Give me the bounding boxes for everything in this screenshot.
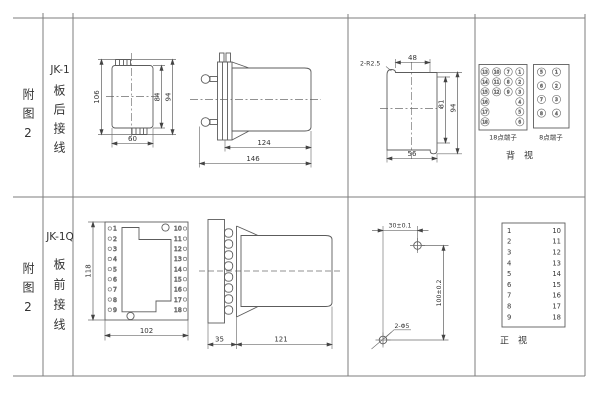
terminal-number: 4	[555, 111, 558, 117]
dim-30: 30±0.1	[389, 223, 412, 230]
terminal-grid-18: 131415161718101112789123456	[481, 68, 524, 126]
terminal-number: 16	[482, 99, 488, 105]
rear-terminal-layout: 131415161718101112789123456 56781234 18点…	[479, 65, 569, 162]
terminal-number: 10	[174, 226, 182, 233]
model-label-jk1: JK-1	[44, 64, 76, 76]
dim-84: 84	[154, 92, 162, 101]
terminal-number: 16	[552, 292, 561, 300]
terminal-column-right: 101112131415161718	[174, 226, 187, 314]
wiring-label-row2: 板前接线	[53, 258, 65, 338]
mounting-hole	[162, 224, 169, 231]
terminal-number: 6	[540, 83, 543, 89]
mounting-flange	[218, 62, 233, 140]
terminal-number: 8	[507, 79, 510, 85]
top-terminal-block	[116, 60, 131, 66]
wiring-label-row1: 板后接线	[53, 84, 65, 160]
jk1-panel-cutout-drawing: 2-R2.5 48 81 94 56	[360, 54, 462, 163]
terminal-number: 15	[174, 276, 182, 283]
terminal-number: 12	[494, 89, 500, 95]
terminal-number: 8	[540, 111, 543, 117]
terminal-number: 4	[113, 256, 117, 263]
terminal-column-left: 123456789	[108, 226, 117, 314]
terminal-circle	[108, 237, 111, 240]
terminal-number: 2	[113, 236, 117, 243]
terminal-circle	[183, 278, 186, 281]
cutout-outline	[387, 70, 437, 154]
terminal-number: 9	[507, 89, 510, 95]
terminal-number: 13	[552, 259, 561, 267]
jk1-front-view-drawing: 106 84 94 60	[93, 53, 176, 148]
jk1q-side-view-drawing: 35 121	[199, 220, 341, 350]
terminal-number: 4	[518, 99, 521, 105]
terminal-number: 2	[507, 238, 511, 246]
terminal-number: 9	[113, 307, 117, 314]
jk1q-front-view-drawing: 123456789 101112131415161718 118 102	[85, 222, 189, 341]
terminal-number: 18	[174, 307, 182, 314]
dim-121: 121	[274, 336, 287, 344]
terminal-grid-8: 56781234	[537, 68, 560, 117]
terminal-circle	[108, 298, 111, 301]
terminal-number: 1	[113, 226, 117, 233]
terminal-number: 12	[552, 249, 561, 257]
terminal-circle	[183, 298, 186, 301]
terminal-screw	[225, 251, 233, 259]
terminal-numbers-right: 101112131415161718	[552, 227, 561, 321]
dim-102: 102	[140, 327, 153, 335]
dim-60: 60	[128, 135, 137, 143]
bottom-terminal-block	[132, 128, 147, 135]
terminal-circle	[183, 237, 186, 240]
terminal-number: 15	[482, 89, 488, 95]
dim-corner-radius: 2-R2.5	[360, 61, 380, 68]
terminal-number: 14	[174, 266, 182, 273]
terminal-circle	[183, 247, 186, 250]
terminal-circle	[183, 288, 186, 291]
terminal-number: 7	[507, 292, 511, 300]
terminal-number: 14	[552, 270, 561, 278]
terminal-number: 1	[518, 69, 521, 75]
terminal-number: 10	[552, 227, 561, 235]
label-rear-view: 背视	[506, 150, 542, 162]
terminal-circle	[108, 308, 111, 311]
terminal-number: 2	[518, 79, 521, 85]
technical-drawing-svg: 106 84 94 60 124 146	[0, 0, 600, 400]
label-front-view: 正视	[500, 335, 536, 347]
drawing-sheet: 附图2 JK-1 板后接线 附图2 JK-1Q 板前接线 106 84 94 6…	[0, 0, 600, 400]
terminal-number: 13	[174, 256, 182, 263]
terminal-number: 3	[555, 97, 558, 103]
terminal-number: 8	[113, 297, 117, 304]
dim-118: 118	[85, 264, 93, 277]
dim-94: 94	[165, 92, 173, 101]
figure-label-row2: 附图2	[22, 262, 34, 321]
figure-label-row1: 附图2	[22, 88, 34, 147]
terminal-circle	[183, 227, 186, 230]
terminal-number: 6	[113, 276, 117, 283]
terminal-number: 18	[552, 313, 561, 321]
terminal-screw	[225, 273, 233, 281]
terminal-number: 7	[507, 69, 510, 75]
case-cutout-outline	[122, 228, 171, 312]
terminal-number: 17	[174, 297, 182, 304]
terminal-number: 17	[482, 109, 488, 115]
terminal-number: 18	[482, 119, 488, 125]
terminal-number: 5	[518, 109, 521, 115]
terminal-circle	[108, 257, 111, 260]
terminal-screw	[225, 262, 233, 270]
terminal-number: 15	[552, 281, 561, 289]
label-18-point: 18点端子	[489, 133, 517, 142]
terminal-number: 10	[494, 69, 500, 75]
front-terminal-table: 123456789 101112131415161718 正视	[500, 223, 565, 347]
dim-48: 48	[408, 54, 417, 62]
terminal-circle	[108, 247, 111, 250]
terminal-number: 3	[113, 246, 117, 253]
terminal-number: 16	[174, 287, 182, 294]
dim-100: 100±0.2	[436, 280, 443, 307]
terminal-number: 6	[507, 281, 511, 289]
terminal-number: 3	[518, 89, 521, 95]
terminal-number: 7	[540, 97, 543, 103]
terminal-screw	[201, 118, 210, 127]
terminal-numbers-left: 123456789	[507, 227, 511, 321]
terminal-number: 11	[174, 236, 182, 243]
terminal-number: 11	[552, 238, 561, 246]
jk1-side-view-drawing: 124 146	[190, 53, 321, 168]
terminal-number: 1	[507, 227, 511, 235]
dim-56: 56	[408, 150, 417, 158]
terminal-screw	[225, 229, 233, 237]
terminal-screw	[225, 306, 233, 314]
terminal-number: 17	[552, 303, 561, 311]
model-label-jk1q: JK-1Q	[41, 231, 79, 243]
terminal-circle	[183, 257, 186, 260]
dim-35: 35	[215, 336, 224, 344]
dim-146: 146	[246, 155, 260, 163]
mounting-hole	[127, 312, 134, 319]
table-grid	[13, 13, 585, 376]
terminal-number: 11	[494, 79, 500, 85]
terminal-number: 12	[174, 246, 182, 253]
drilling-plan-drawing: 30±0.1 100±0.2 2-Φ5	[372, 223, 449, 350]
terminal-number: 4	[507, 259, 511, 267]
dim-94-cutout: 94	[450, 103, 458, 112]
terminal-number: 1	[555, 70, 558, 76]
terminal-number: 9	[507, 313, 511, 321]
terminal-number: 2	[555, 83, 558, 89]
terminal-number: 6	[518, 119, 521, 125]
terminal-number: 5	[507, 270, 511, 278]
terminal-circle	[108, 227, 111, 230]
terminal-screw-row	[225, 229, 233, 314]
terminal-circle	[108, 288, 111, 291]
terminal-circle	[108, 278, 111, 281]
terminal-screw	[225, 240, 233, 248]
label-8-point: 8点端子	[539, 133, 563, 142]
dim-124: 124	[257, 139, 271, 147]
terminal-circle	[108, 267, 111, 270]
terminal-screw	[225, 284, 233, 292]
terminal-number: 7	[113, 287, 117, 294]
dim-81: 81	[438, 100, 446, 109]
terminal-circle	[183, 267, 186, 270]
terminal-number: 3	[507, 249, 511, 257]
terminal-screw	[201, 75, 210, 84]
terminal-circle	[183, 308, 186, 311]
terminal-number: 14	[482, 79, 488, 85]
terminal-screw	[225, 295, 233, 303]
terminal-number: 5	[113, 266, 117, 273]
terminal-number: 8	[507, 303, 511, 311]
terminal-number: 13	[482, 69, 488, 75]
dim-106: 106	[93, 90, 101, 104]
terminal-number: 5	[540, 70, 543, 76]
dim-hole-spec: 2-Φ5	[395, 323, 410, 330]
